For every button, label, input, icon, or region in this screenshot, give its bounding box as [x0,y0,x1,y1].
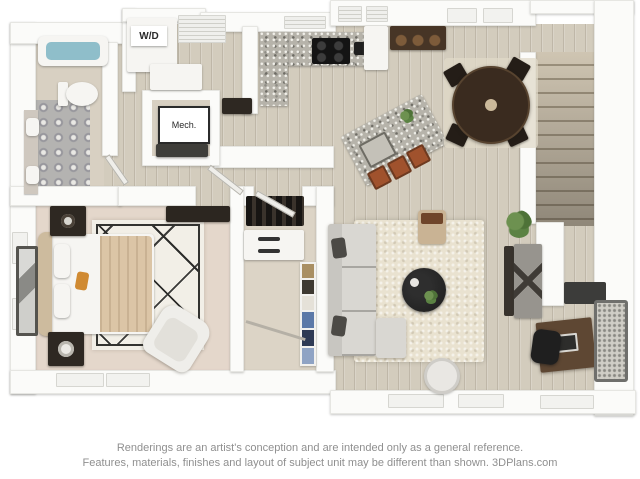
folded-clothes-6 [302,348,314,364]
toilet [66,82,98,106]
side-table [424,358,460,394]
window-top-c [447,8,477,23]
framed-pegboard [594,300,628,382]
staircase-shadow [536,52,594,226]
folded-clothes-1 [302,264,314,278]
leaning-mirror [16,246,38,336]
pillow-b [54,284,70,318]
wall-bedroom-top-a [118,186,196,206]
coffee-table-plant [424,290,438,304]
lamp-south [58,341,74,357]
pillow-a [54,244,70,278]
island-plant [398,106,417,125]
kitchen-counter-left [260,32,288,106]
sofa-chaise [376,318,406,358]
laundry-counter [150,64,202,90]
coffee-table-dish [410,278,419,287]
bathtub-water [46,42,100,60]
sink-b [26,166,39,184]
dresser [166,206,230,222]
sofa-pillow-a [331,237,348,259]
folded-clothes-4 [302,312,314,328]
floor-plan: W/D Mech. [0,0,640,430]
drawer-handle-a [258,237,280,241]
folded-clothes-3 [302,296,314,310]
mech-shelf [156,144,208,157]
drawer-handle-b [258,249,280,253]
window-living-bottom-a [388,394,444,408]
headboard [38,232,52,336]
laundry-shelf-unit [178,15,226,43]
window-kitchen [284,16,326,29]
window-living-bottom-c [540,395,594,409]
closet-drawers [244,230,304,260]
office-chair [530,328,562,366]
cooktop [312,38,350,64]
armchair-seat [151,315,201,365]
disclaimer-line-1: Renderings are an artist's conception an… [0,441,640,456]
wall-closet-left [230,186,244,372]
ottoman [418,210,446,244]
living-plant [506,210,532,238]
window-bedroom-bottom-b [106,373,150,387]
disclaimer-line-2: Features, materials, finishes and layout… [0,456,640,471]
window-top-a [338,6,362,22]
window-top-b [366,6,388,22]
washer-dryer-label: W/D [131,26,167,46]
coffee-table [402,268,446,312]
nightstand-north [50,206,86,236]
wall-hallway [214,146,334,168]
dining-table [452,66,530,144]
speakers [504,246,514,316]
bed-blanket [100,236,152,332]
table-centerpiece [485,99,497,111]
bathroom-ornate-tile [36,100,90,190]
hall-console [222,98,252,114]
disclaimer: Renderings are an artist's conception an… [0,441,640,471]
window-top-d [483,8,513,23]
window-bedroom-bottom-a [56,373,104,387]
sofa-pillow-b [331,315,348,337]
bar-console [390,26,446,50]
closet-cubbies [300,262,316,366]
window-living-bottom-b [458,394,504,408]
wall-left [10,22,36,394]
sink-a [26,118,39,136]
nightstand-south [48,332,84,366]
folded-clothes-2 [302,280,314,294]
lamp-north [61,214,75,228]
fridge [364,26,388,70]
ottoman-tray [421,213,443,224]
mech-label: Mech. [158,106,210,144]
media-console [514,244,542,318]
